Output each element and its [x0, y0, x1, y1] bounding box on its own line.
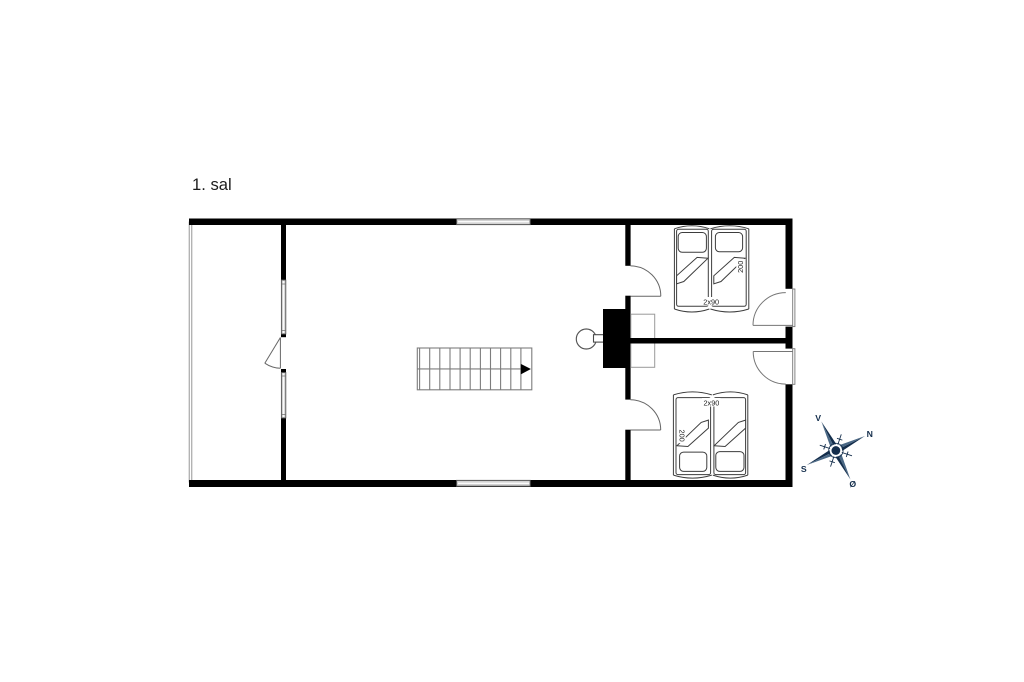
svg-text:2x90: 2x90 — [703, 398, 719, 407]
svg-text:2x90: 2x90 — [703, 297, 719, 306]
svg-text:S: S — [801, 464, 807, 474]
svg-text:200: 200 — [736, 261, 745, 273]
svg-text:Ø: Ø — [849, 479, 856, 489]
svg-text:V: V — [815, 413, 821, 423]
svg-text:200: 200 — [678, 430, 687, 442]
svg-text:N: N — [867, 429, 873, 439]
svg-text:1. sal: 1. sal — [192, 175, 232, 194]
